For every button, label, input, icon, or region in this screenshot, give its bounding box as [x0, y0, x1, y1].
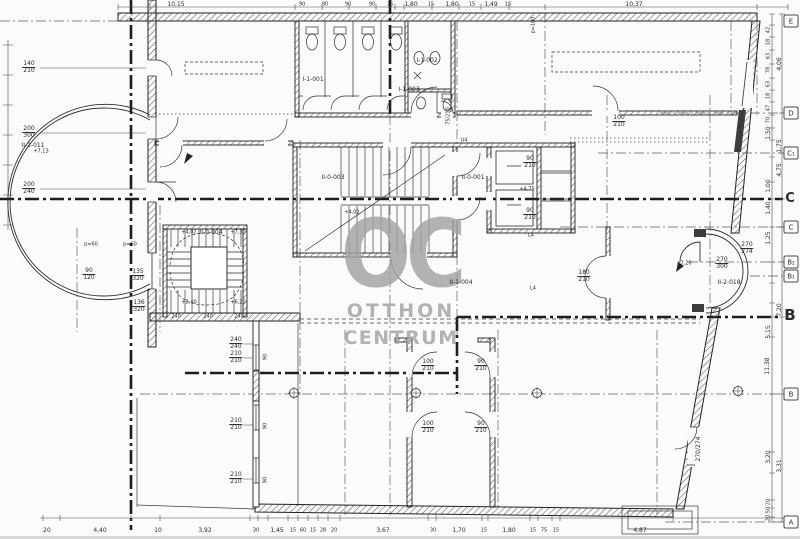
grid-bubble-D: D — [784, 107, 799, 120]
grid-bubble-C: C — [784, 221, 799, 234]
grid-bubble-C₁: C₁ — [784, 147, 799, 160]
grid-bubble-B: B — [784, 388, 799, 401]
grid-bubble-A: A — [784, 516, 799, 529]
grid-bubble-B₂: B₂ — [784, 256, 799, 269]
floorplan-canvas: OC OTTHON CENTRUM II-1-011I-1-001I-1-002… — [0, 0, 800, 539]
grid-bubble-layer: EDC₁CB₂B₁BA — [0, 0, 800, 539]
grid-bubble-E: E — [784, 15, 799, 28]
grid-bubble-B₁: B₁ — [784, 270, 799, 283]
